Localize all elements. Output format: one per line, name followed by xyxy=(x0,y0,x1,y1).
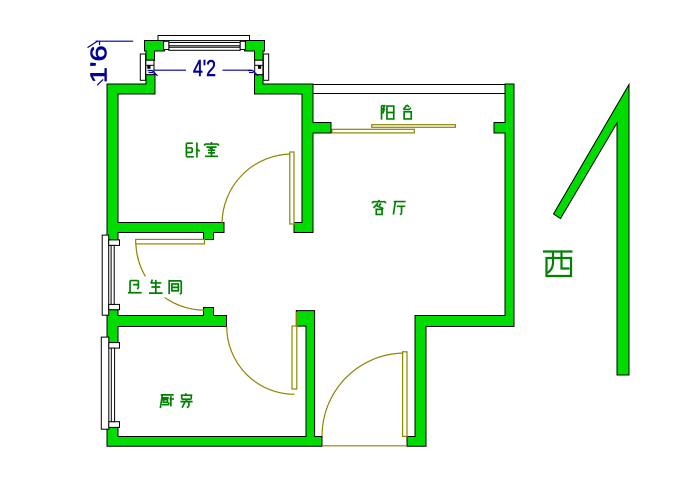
svg-text:4'2: 4'2 xyxy=(193,55,216,81)
svg-text:1'6: 1'6 xyxy=(86,45,112,83)
